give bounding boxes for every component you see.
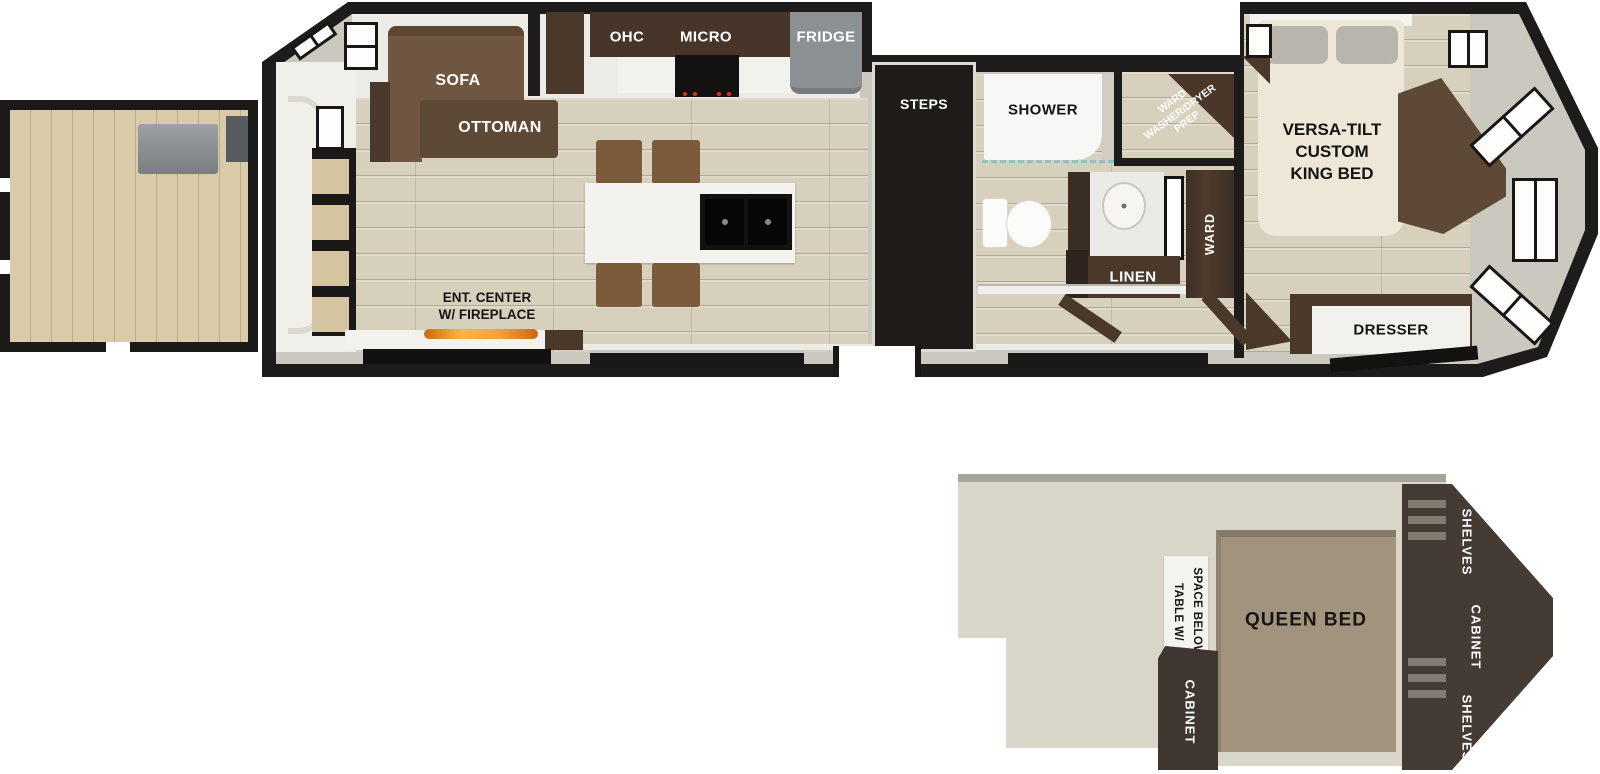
deck-corner-box <box>226 116 248 162</box>
dinette-chair <box>652 140 700 184</box>
ward-room-bottom-wall <box>1114 158 1240 166</box>
pillow <box>1266 26 1328 64</box>
floorplan-page: SOFA OTTOMAN ENT. CENTER W/ FIREPLACE OH… <box>0 0 1600 774</box>
ward-label: WARD <box>1204 213 1217 255</box>
sink-bowl <box>748 199 787 245</box>
vanity-sink <box>1102 182 1146 230</box>
dinette-chair <box>596 140 642 184</box>
sofa-side-window <box>344 22 378 70</box>
entry-window <box>316 106 344 150</box>
deck-rail-gap <box>106 342 130 352</box>
island-sink <box>700 194 792 250</box>
sink-bowl <box>705 199 744 245</box>
loft-queen-bed <box>1216 530 1396 752</box>
fridge-label: FRIDGE <box>796 30 855 45</box>
micro-label: MICRO <box>680 30 732 45</box>
pillow <box>1336 26 1398 64</box>
dinette-chair <box>652 263 700 307</box>
shower-glass <box>982 160 1114 163</box>
entry-steps[interactable] <box>312 148 356 336</box>
toilet-tank <box>982 198 1008 248</box>
deck <box>0 100 258 352</box>
ward-room-left-wall <box>1114 72 1122 164</box>
burner-dot <box>727 92 731 96</box>
entry-door-opening[interactable] <box>833 346 921 377</box>
sink-drain <box>765 219 771 225</box>
sofa <box>388 26 524 104</box>
toilet-bowl <box>1006 200 1052 248</box>
loft-table-label-line1: TABLE W/ <box>1171 583 1183 641</box>
bottom-window-right <box>1008 350 1208 368</box>
sink-drain <box>722 219 728 225</box>
ohc-label: OHC <box>610 30 645 45</box>
linen-label: LINEN <box>1110 270 1157 285</box>
ottoman-label: OTTOMAN <box>458 120 541 136</box>
deck-grill <box>138 124 218 174</box>
deck-rail-gap <box>0 260 10 274</box>
ent-center-label: ENT. CENTER W/ FIREPLACE <box>439 290 536 324</box>
steps-label: STEPS <box>900 97 948 111</box>
loft-shelves-bottom-label: SHELVES <box>1461 695 1474 762</box>
bedroom-wall <box>1234 58 1244 358</box>
bedroom-window-left <box>1246 24 1272 58</box>
dinette-chair <box>596 263 642 307</box>
burner-dot <box>683 92 687 96</box>
tv <box>363 349 551 364</box>
nose-window-middle <box>1512 178 1558 262</box>
sofa-side-table <box>370 82 390 162</box>
loft-shelves-top-label: SHELVES <box>1461 509 1474 576</box>
fridge <box>790 12 862 94</box>
fireplace-flame <box>424 329 538 339</box>
bath-mirror <box>1164 176 1184 260</box>
sofa-chaise <box>388 100 422 162</box>
king-bed-label: VERSA-TILT CUSTOM KING BED <box>1283 119 1382 185</box>
sofa-label: SOFA <box>435 73 480 89</box>
kitchen-divider-wall <box>528 6 540 96</box>
loft-unit-cabinet-label: CABINET <box>1470 605 1483 670</box>
ent-center-cabinet <box>545 330 583 350</box>
sink-drain <box>1122 204 1127 209</box>
shower-label: SHOWER <box>1008 103 1078 118</box>
bottom-window-left <box>590 350 804 368</box>
burner-dot <box>693 92 697 96</box>
queen-bed-label: QUEEN BED <box>1245 611 1367 630</box>
bedroom-window-right <box>1448 30 1488 68</box>
loft-table-label-line2: SPACE BELOW <box>1190 567 1202 656</box>
burner-dot <box>717 92 721 96</box>
cooktop <box>675 55 739 97</box>
dresser-label: DRESSER <box>1353 323 1428 338</box>
loft-cabinet-label: CABINET <box>1184 680 1197 745</box>
pantry <box>546 12 584 94</box>
mirror-glass <box>1167 179 1181 257</box>
deck-rail-gap <box>0 178 10 192</box>
